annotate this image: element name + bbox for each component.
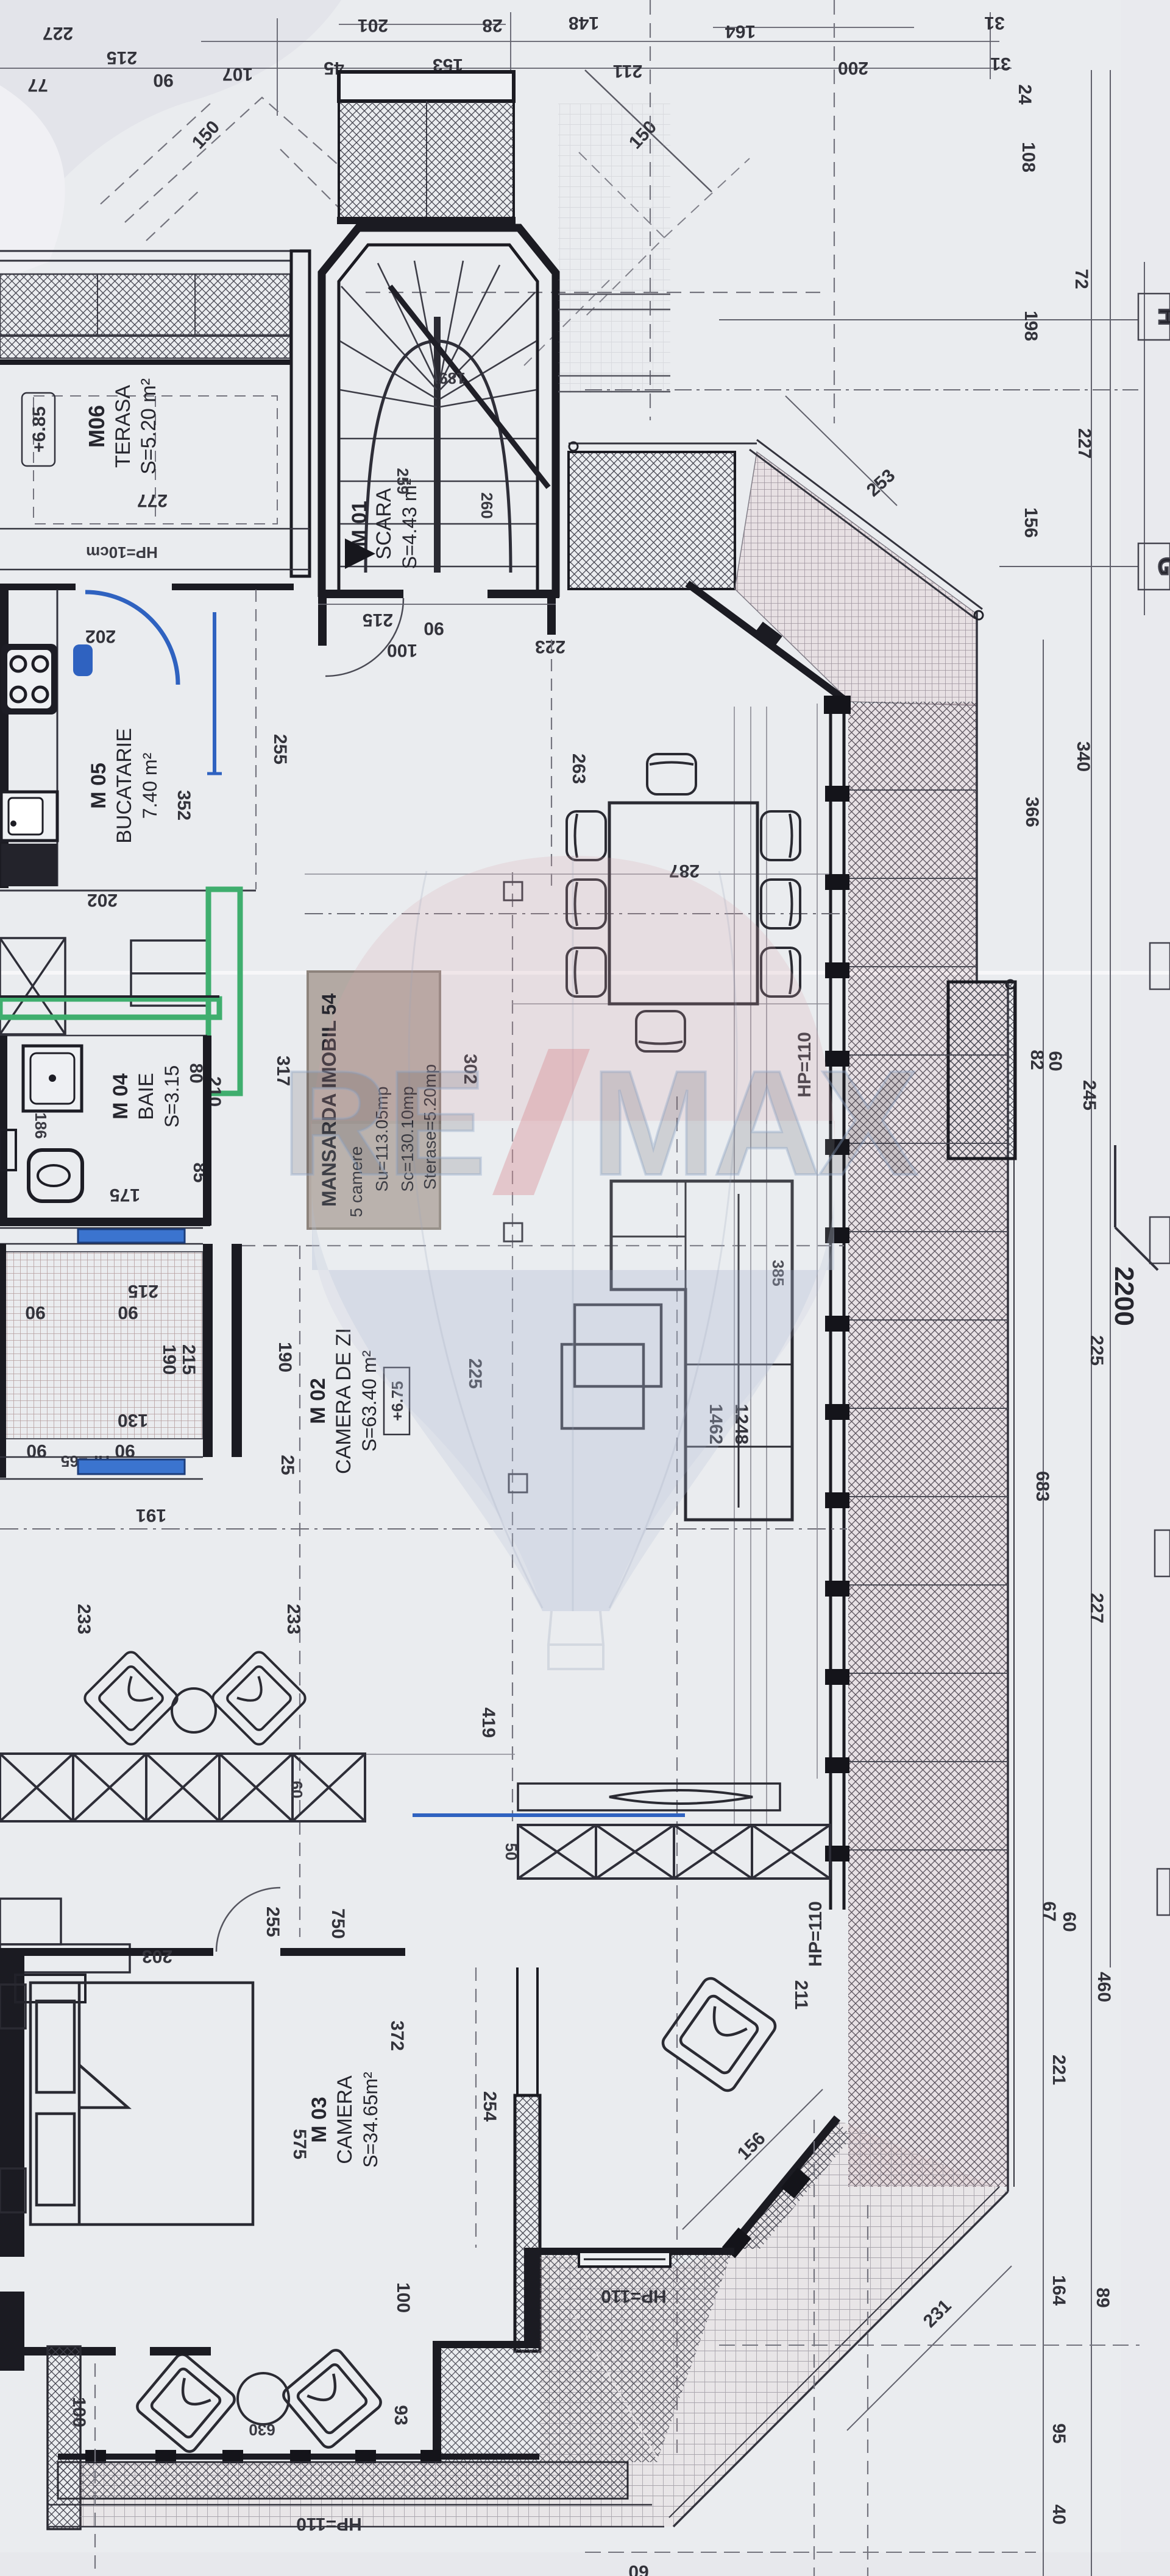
svg-text:215: 215 [128, 1281, 158, 1301]
svg-text:HP=110: HP=110 [296, 2514, 362, 2534]
svg-text:198: 198 [1021, 311, 1041, 341]
svg-text:95: 95 [1049, 2423, 1069, 2443]
svg-text:254: 254 [480, 2091, 500, 2122]
svg-text:630: 630 [249, 2421, 275, 2439]
svg-text:164: 164 [1049, 2275, 1069, 2306]
svg-text:MAX: MAX [591, 1039, 917, 1206]
svg-text:200: 200 [838, 58, 868, 78]
svg-text:100: 100 [387, 640, 417, 660]
svg-text:25: 25 [277, 1455, 297, 1475]
svg-text:750: 750 [328, 1908, 348, 1939]
svg-text:130: 130 [118, 1410, 148, 1430]
svg-text:575: 575 [289, 2129, 310, 2159]
svg-text:221: 221 [1049, 2055, 1069, 2085]
svg-text:S=5.20 m²: S=5.20 m² [137, 378, 160, 475]
svg-text:31: 31 [990, 54, 1010, 74]
svg-text:233: 233 [74, 1604, 94, 1634]
svg-text:CAMERA DE ZI: CAMERA DE ZI [332, 1328, 355, 1474]
svg-text:108: 108 [1018, 142, 1038, 172]
svg-text:60: 60 [288, 1781, 306, 1799]
svg-text:M 03: M 03 [308, 2097, 331, 2143]
svg-text:260: 260 [478, 492, 496, 518]
svg-text:148: 148 [569, 13, 599, 33]
svg-text:M 02: M 02 [307, 1378, 330, 1424]
svg-text:50: 50 [502, 1843, 520, 1861]
svg-text:202: 202 [85, 626, 116, 646]
svg-text:227: 227 [1074, 428, 1094, 459]
svg-text:90: 90 [118, 1302, 138, 1322]
svg-text:202: 202 [87, 890, 118, 910]
svg-text:372: 372 [387, 2020, 407, 2051]
svg-text:164: 164 [725, 21, 756, 41]
svg-text:G: G [1154, 557, 1170, 576]
svg-text:225: 225 [1087, 1335, 1107, 1366]
svg-text:233: 233 [283, 1604, 303, 1634]
svg-text:S=34.65m²: S=34.65m² [360, 2072, 381, 2168]
svg-text:190: 190 [159, 1344, 179, 1375]
svg-text:100: 100 [393, 2282, 413, 2313]
svg-text:223: 223 [535, 637, 565, 657]
svg-text:227: 227 [43, 23, 73, 43]
svg-text:HP=10cm: HP=10cm [86, 543, 158, 562]
svg-text:60: 60 [628, 2561, 648, 2576]
svg-text:7.40 m²: 7.40 m² [139, 752, 161, 819]
svg-text:203: 203 [142, 1946, 172, 1966]
svg-text:60: 60 [1045, 1051, 1065, 1071]
svg-text:M 05: M 05 [87, 763, 110, 809]
svg-text:277: 277 [137, 490, 168, 510]
svg-text:227: 227 [1087, 1593, 1107, 1623]
svg-text:191: 191 [136, 1505, 166, 1525]
svg-text:89: 89 [1093, 2287, 1113, 2307]
svg-text:255: 255 [263, 1907, 283, 1937]
svg-text:CAMERA: CAMERA [333, 2075, 356, 2164]
svg-text:77: 77 [27, 75, 48, 95]
svg-text:156: 156 [1021, 507, 1041, 538]
svg-text:HP=110: HP=110 [601, 2286, 667, 2306]
svg-text:24: 24 [1015, 84, 1035, 105]
svg-text:352: 352 [174, 790, 194, 820]
svg-text:M 01: M 01 [348, 501, 371, 547]
svg-text:263: 263 [569, 753, 589, 784]
svg-text:90: 90 [424, 618, 444, 638]
svg-text:366: 366 [1022, 797, 1042, 827]
svg-text:BAIE: BAIE [135, 1073, 158, 1120]
svg-text:683: 683 [1032, 1471, 1052, 1501]
svg-text:RE: RE [282, 1039, 484, 1206]
svg-text:60: 60 [1059, 1911, 1079, 1932]
svg-text:460: 460 [1094, 1972, 1114, 2002]
svg-text:215: 215 [179, 1344, 199, 1375]
svg-text:201: 201 [358, 15, 388, 35]
svg-text:TERASA: TERASA [112, 385, 135, 468]
svg-text:M06: M06 [84, 405, 109, 448]
svg-text:186: 186 [32, 1112, 50, 1138]
svg-text:+6.85: +6.85 [29, 406, 49, 453]
svg-text:255: 255 [270, 734, 290, 764]
svg-text:211: 211 [613, 61, 642, 81]
svg-text:M 04: M 04 [109, 1073, 132, 1120]
svg-text:211: 211 [791, 1980, 811, 2010]
svg-text:40: 40 [1049, 2504, 1069, 2524]
svg-text:245: 245 [1079, 1080, 1099, 1110]
svg-text:190: 190 [275, 1342, 295, 1372]
svg-text:189: 189 [439, 369, 465, 387]
svg-text:HP=110: HP=110 [806, 1901, 826, 1967]
svg-text:72: 72 [1071, 269, 1091, 289]
svg-text:BUCATARIE: BUCATARIE [113, 728, 136, 844]
svg-text:H: H [1154, 308, 1170, 326]
svg-text:93: 93 [391, 2405, 411, 2425]
svg-text:419: 419 [478, 1707, 498, 1738]
svg-text:S=3.15: S=3.15 [161, 1065, 183, 1127]
svg-text:215: 215 [107, 48, 137, 68]
svg-text:SCARA: SCARA [372, 488, 395, 559]
svg-text:82: 82 [1027, 1050, 1047, 1070]
svg-text:215: 215 [363, 610, 393, 630]
svg-text:90: 90 [153, 70, 173, 90]
svg-text:107: 107 [222, 64, 253, 84]
svg-text:340: 340 [1073, 741, 1093, 772]
svg-text:67: 67 [1039, 1901, 1059, 1921]
svg-text:2200: 2200 [1109, 1266, 1139, 1326]
svg-text:259: 259 [394, 468, 412, 494]
svg-text:175: 175 [110, 1185, 140, 1205]
svg-text:90: 90 [25, 1302, 45, 1322]
svg-text:31: 31 [984, 13, 1004, 33]
svg-text:28: 28 [482, 15, 502, 35]
